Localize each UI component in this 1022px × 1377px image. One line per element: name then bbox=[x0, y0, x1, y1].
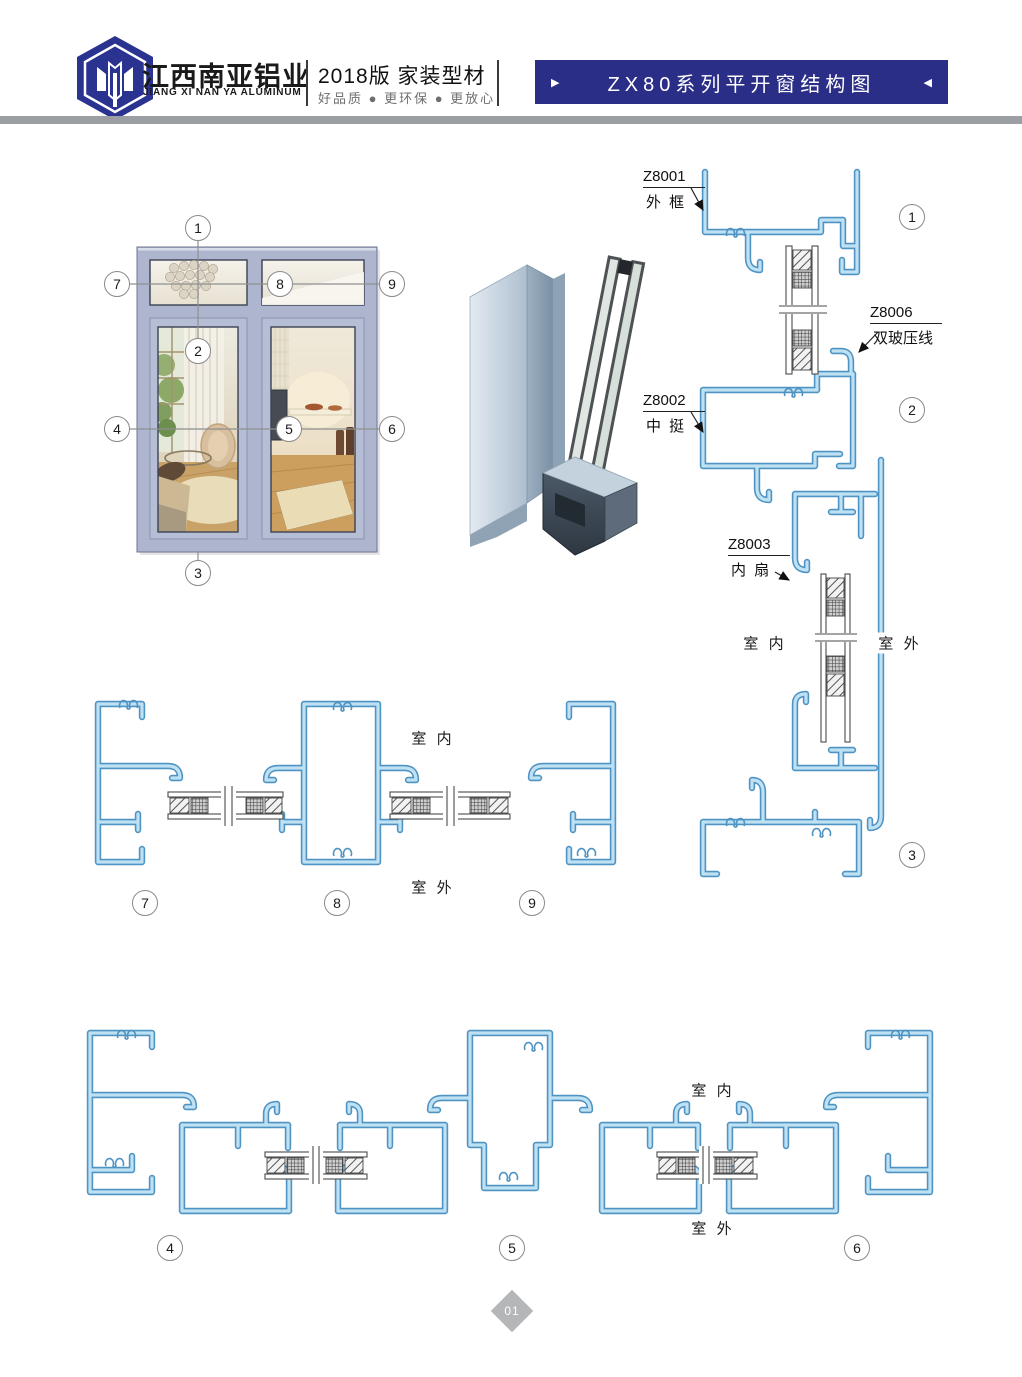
sash-profiles bbox=[90, 1031, 930, 1211]
label-z8001-code: Z8001 bbox=[643, 168, 705, 188]
callout-elevation-7: 7 bbox=[104, 271, 130, 297]
vsec-indoor-label: 室 内 bbox=[741, 633, 788, 654]
label-z8006-code: Z8006 bbox=[870, 304, 942, 324]
callout-elevation-3: 3 bbox=[185, 560, 211, 586]
callout-botsec-5: 5 bbox=[499, 1235, 525, 1261]
transom-glass-unit-right bbox=[390, 786, 510, 826]
label-z8002-name: 中 挺 bbox=[643, 415, 705, 436]
callout-elevation-8: 8 bbox=[267, 271, 293, 297]
header-divider-1 bbox=[306, 60, 308, 106]
label-z8001-name: 外 框 bbox=[643, 191, 705, 212]
transom-profiles bbox=[98, 701, 613, 862]
midsec-outdoor-label: 室 外 bbox=[409, 877, 456, 898]
label-z8003-name: 内 扇 bbox=[728, 559, 790, 580]
page-number-diamond: 01 bbox=[491, 1290, 533, 1332]
banner-title: ZX80系列平开窗结构图 bbox=[608, 68, 876, 97]
callout-midsec-7: 7 bbox=[132, 890, 158, 916]
header-divider-2 bbox=[497, 60, 499, 106]
page-number: 01 bbox=[497, 1296, 527, 1326]
slogan: 好品质 ● 更环保 ● 更放心 bbox=[318, 88, 495, 107]
botsec-outdoor-label: 室 外 bbox=[689, 1218, 736, 1239]
callout-vsec-1: 1 bbox=[899, 204, 925, 230]
vsec-outdoor-label: 室 外 bbox=[876, 633, 923, 654]
sash-horizontal-section-drawing bbox=[70, 1020, 950, 1270]
callout-botsec-4: 4 bbox=[157, 1235, 183, 1261]
glazing-panes bbox=[565, 257, 644, 491]
sash-glass-unit-right bbox=[657, 1146, 757, 1184]
midsec-indoor-label: 室 内 bbox=[409, 728, 456, 749]
callout-vsec-2: 2 bbox=[899, 397, 925, 423]
glass-unit-upper bbox=[779, 246, 827, 374]
vertical-section-drawing bbox=[645, 160, 965, 890]
edition-title: 2018版 家装型材 bbox=[318, 60, 486, 90]
glass-unit-lower bbox=[815, 574, 857, 742]
callout-vsec-3: 3 bbox=[899, 842, 925, 868]
botsec-indoor-label: 室 内 bbox=[689, 1080, 736, 1101]
label-z8002-code: Z8002 bbox=[643, 392, 705, 412]
label-z8001: Z8001 外 框 bbox=[643, 168, 705, 212]
callout-botsec-6: 6 bbox=[844, 1235, 870, 1261]
label-z8002: Z8002 中 挺 bbox=[643, 392, 705, 436]
callout-midsec-8: 8 bbox=[324, 890, 350, 916]
profile-corner-3d-render bbox=[435, 235, 655, 565]
label-z8003: Z8003 内 扇 bbox=[728, 536, 790, 580]
callout-elevation-2: 2 bbox=[185, 338, 211, 364]
transom-horizontal-section-drawing bbox=[80, 690, 640, 920]
banner-right-arrow-icon: ◀ bbox=[924, 76, 932, 89]
callout-elevation-6: 6 bbox=[379, 416, 405, 442]
brand-name-en: JIANG XI NAN YA ALUMINUM bbox=[143, 87, 301, 98]
label-z8006: Z8006 双玻压线 bbox=[870, 304, 942, 348]
callout-elevation-9: 9 bbox=[379, 271, 405, 297]
callout-elevation-5: 5 bbox=[276, 416, 302, 442]
callout-midsec-9: 9 bbox=[519, 890, 545, 916]
banner-left-arrow-icon: ▶ bbox=[551, 76, 559, 89]
transom-glass-unit-left bbox=[168, 786, 283, 826]
header-rule bbox=[0, 116, 1022, 124]
sash-glass-unit-left bbox=[265, 1146, 367, 1184]
series-title-banner: ▶ ZX80系列平开窗结构图 ◀ bbox=[535, 60, 948, 104]
callout-elevation-1: 1 bbox=[185, 215, 211, 241]
window-elevation-drawing bbox=[90, 200, 420, 600]
callout-elevation-4: 4 bbox=[104, 416, 130, 442]
catalog-page: 江西南亚铝业 JIANG XI NAN YA ALUMINUM 2018版 家装… bbox=[0, 0, 1022, 1377]
label-z8003-code: Z8003 bbox=[728, 536, 790, 556]
label-z8006-name: 双玻压线 bbox=[870, 327, 942, 348]
